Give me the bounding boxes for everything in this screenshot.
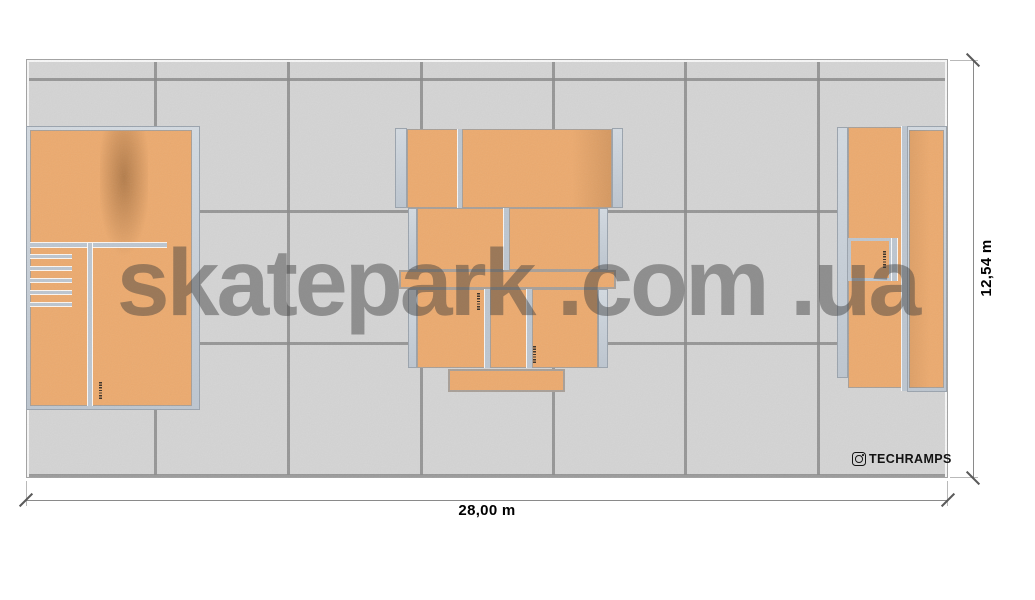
camera-lens-icon: [855, 455, 863, 463]
techramps-logo: TECHRAMPS: [852, 452, 952, 466]
dimension-height-label: 12,54 m: [978, 228, 994, 308]
funbox-bank-panel: [532, 289, 598, 368]
right-ramp-side-wing: [837, 127, 848, 378]
funbox-bank-panel: [462, 129, 612, 208]
funbox-bank-panel: [407, 129, 458, 208]
grind-box: [448, 369, 565, 392]
grid-line-horizontal: [29, 474, 945, 477]
funbox-bank-panel: [490, 289, 527, 368]
funbox-bank-panel: [417, 289, 485, 368]
mini-brand-mark: [99, 382, 102, 399]
camera-dot-icon: [862, 454, 864, 456]
extension-line: [26, 481, 27, 506]
grind-ledge: [399, 270, 616, 289]
skatepark-plan: skatepark .com .ua 28,00 m 12,54 m TECHR…: [0, 0, 1035, 600]
dimension-line-height: [973, 60, 974, 478]
stair-step: [30, 303, 72, 306]
left-ramp-divider: [88, 243, 92, 406]
funbox-side-wing: [599, 208, 608, 270]
right-ramp-panel: [909, 130, 944, 388]
funbox-deck-panel: [417, 208, 504, 270]
left-ramp-divider: [30, 243, 167, 247]
funbox-side-wing: [612, 128, 623, 208]
stair-step: [30, 267, 72, 270]
mini-brand-mark: [477, 293, 480, 310]
grid-line-vertical: [287, 62, 290, 475]
funbox-deck-panel: [509, 208, 599, 270]
stair-step: [30, 255, 72, 258]
right-ramp-divider: [892, 238, 897, 281]
stair-step: [30, 291, 72, 294]
funbox-side-wing: [408, 208, 417, 270]
stair-step: [30, 279, 72, 282]
dimension-line-width: [26, 500, 948, 501]
instagram-badge-icon: [852, 452, 866, 466]
funbox-side-wing: [598, 289, 608, 368]
dimension-width-label: 28,00 m: [417, 502, 557, 519]
grid-line-vertical: [817, 62, 820, 475]
techramps-label: TECHRAMPS: [869, 452, 952, 466]
grid-line-horizontal: [29, 78, 945, 81]
grid-line-vertical: [684, 62, 687, 475]
mini-brand-mark: [883, 251, 886, 268]
mini-brand-mark: [533, 346, 536, 363]
funbox-side-wing: [395, 128, 407, 208]
funbox-side-wing: [408, 289, 417, 368]
